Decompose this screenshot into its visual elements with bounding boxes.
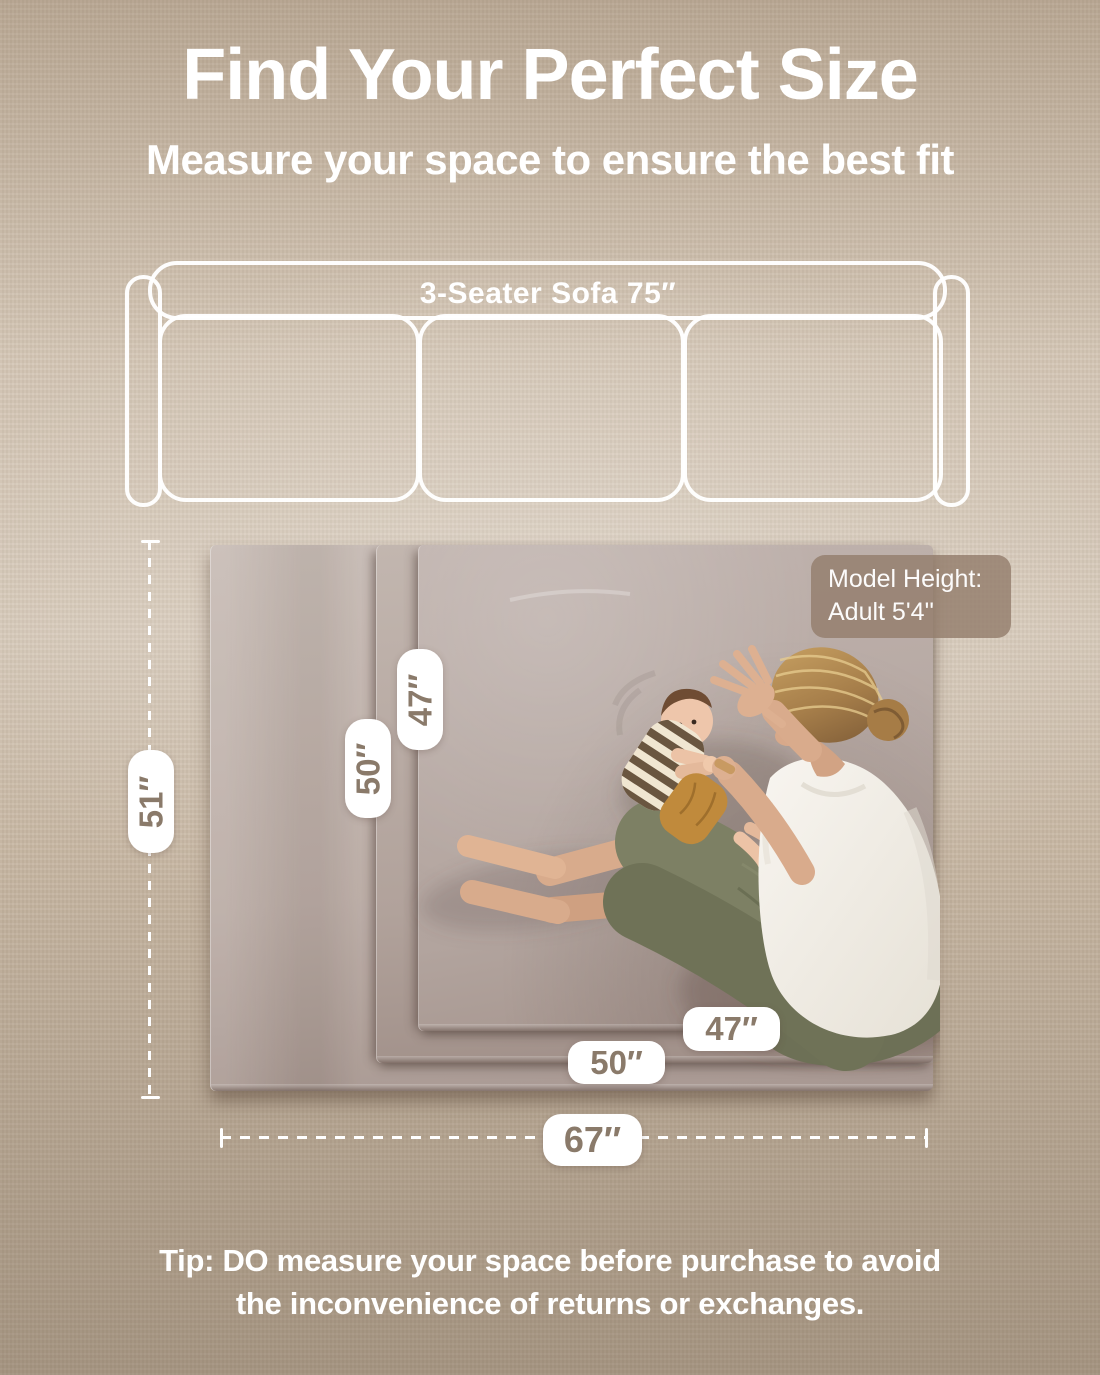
- mat-side-label-47: 47″: [397, 649, 443, 750]
- product-infographic: Find Your Perfect Size Measure your spac…: [0, 0, 1100, 1375]
- mat-wrinkles: [510, 591, 655, 735]
- mat-width-label-67: 67″: [543, 1114, 642, 1166]
- dimension-tick: [141, 540, 160, 543]
- mat-width-label-47: 47″: [683, 1007, 780, 1051]
- page-title: Find Your Perfect Size: [0, 34, 1100, 116]
- mat-width-label-50: 50″: [568, 1041, 665, 1084]
- sofa-size-label: 3-Seater Sofa 75″: [118, 277, 978, 311]
- tip-text: Tip: DO measure your space before purcha…: [0, 1239, 1100, 1325]
- dimension-tick: [141, 1096, 160, 1099]
- mother-shirt: [758, 758, 940, 1038]
- dimension-tick: [220, 1128, 223, 1148]
- model-height-line2: Adult 5'4'': [828, 596, 1011, 629]
- sofa-left-armrest: [127, 277, 160, 505]
- dimension-tick: [925, 1128, 928, 1148]
- tip-line1: Tip: DO measure your space before purcha…: [0, 1239, 1100, 1282]
- tip-line2: the inconvenience of returns or exchange…: [0, 1282, 1100, 1325]
- mother-foot: [468, 846, 555, 868]
- mat-side-label-51: 51″: [128, 750, 174, 853]
- baby-arm: [678, 755, 705, 762]
- mat-side-label-50: 50″: [345, 719, 391, 818]
- sofa-cushion: [160, 316, 418, 500]
- baby-arm: [682, 768, 708, 772]
- model-height-line1: Model Height:: [828, 563, 1011, 596]
- model-height-badge: Model Height: Adult 5'4'': [811, 555, 1011, 638]
- sofa-cushion: [420, 316, 683, 500]
- page-subtitle: Measure your space to ensure the best fi…: [0, 136, 1100, 184]
- sofa-cushion: [685, 316, 941, 500]
